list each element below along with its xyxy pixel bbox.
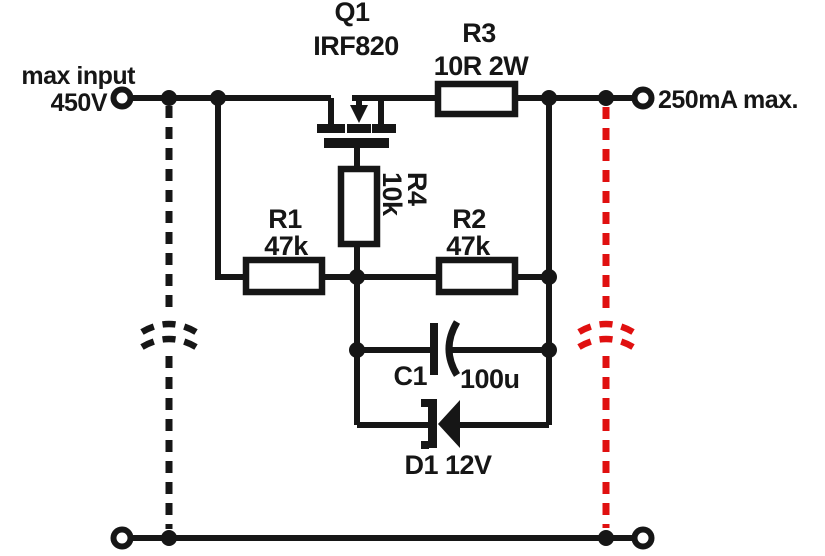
label-r3-value: 10R 2W (434, 51, 530, 81)
resistor-r4 (341, 169, 377, 277)
junction-dot (210, 90, 226, 106)
junction-dot (161, 90, 177, 106)
resistor-body (341, 169, 377, 244)
circuit-schematic: max input 450V 250mA max. Q1 IRF820 R3 1… (0, 0, 825, 556)
dashed-capacitor-left (142, 106, 196, 529)
label-r1-value: 47k (264, 231, 309, 261)
resistor-r2 (357, 260, 549, 292)
resistor-body (246, 260, 322, 292)
dashed-plate (579, 339, 633, 347)
return-terminal-right (635, 530, 652, 547)
d1-anode-triangle (438, 400, 460, 448)
schematic-canvas: max input 450V 250mA max. Q1 IRF820 R3 1… (0, 0, 825, 556)
gate-bar (324, 138, 389, 148)
drain-pad (317, 124, 345, 133)
dashed-plate (142, 339, 196, 347)
resistor-body (439, 260, 515, 292)
junction-dot (541, 90, 557, 106)
label-r4-group: R4 10k (377, 172, 432, 217)
label-d1: D1 12V (404, 450, 492, 480)
junction-dot (349, 342, 365, 358)
body-pad (347, 124, 371, 133)
label-max-input: max input (21, 62, 136, 90)
label-r1-ref: R1 (268, 204, 302, 234)
label-r2-ref: R2 (452, 204, 486, 234)
junction-dot (541, 269, 557, 285)
output-terminal (635, 90, 652, 107)
label-q1-part: IRF820 (313, 31, 399, 61)
label-c1-ref: C1 (393, 361, 427, 391)
return-terminal-left (114, 530, 131, 547)
r1-left-lead (218, 98, 246, 277)
zener-d1 (357, 399, 549, 449)
dashed-plate (142, 324, 196, 332)
dashed-plate (579, 324, 633, 332)
capacitor-c1 (357, 322, 549, 375)
source-pad (372, 124, 396, 133)
c1-plate-straight (430, 323, 438, 375)
junction-dot (541, 342, 557, 358)
label-output-current: 250mA max. (658, 86, 798, 114)
label-input-voltage: 450V (51, 89, 108, 117)
dashed-capacitor-right (579, 107, 633, 528)
resistor-body (438, 84, 515, 114)
junction-dot (598, 90, 614, 106)
junction-dot (598, 530, 614, 546)
body-arrow-icon (350, 105, 368, 123)
resistor-r3 (438, 84, 515, 114)
junction-dot (161, 530, 177, 546)
label-r3-ref: R3 (462, 18, 496, 48)
label-q1-ref: Q1 (334, 0, 370, 27)
label-r2-value: 47k (446, 231, 491, 261)
label-c1-value: 100u (460, 364, 520, 394)
d1-bar-hook-bottom (421, 441, 429, 449)
d1-cathode-bar (428, 399, 437, 448)
label-r4-value: 10k (377, 172, 407, 217)
input-terminal (114, 90, 131, 107)
d1-bar-hook-top (421, 399, 429, 407)
junction-dot (349, 269, 365, 285)
